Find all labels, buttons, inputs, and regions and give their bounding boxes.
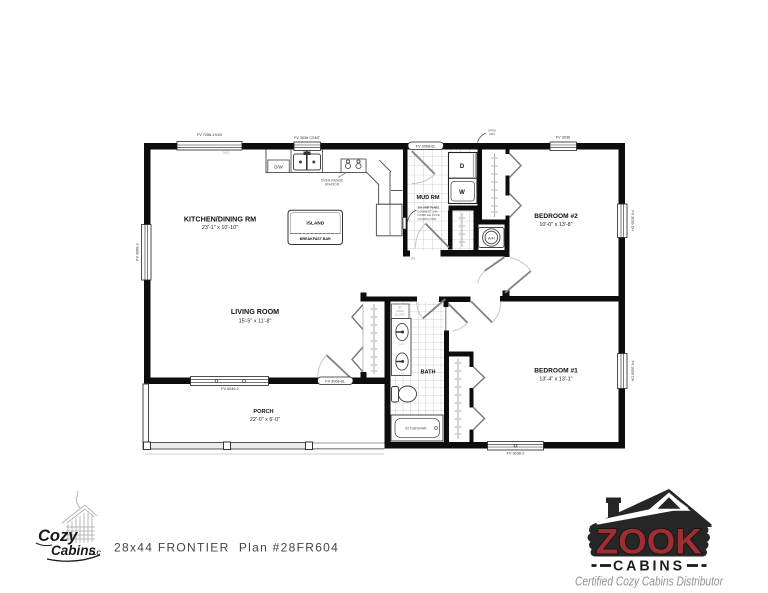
svg-text:FV 3036-2: FV 3036-2 — [507, 452, 525, 456]
svg-text:D: D — [460, 164, 465, 170]
svg-text:36x22: 36x22 — [222, 151, 230, 155]
svg-text:LAV: LAV — [399, 343, 404, 346]
svg-text:ABV: ABV — [489, 132, 495, 136]
svg-text:22'-0" x 6'-0": 22'-0" x 6'-0" — [250, 417, 280, 423]
svg-text:2'6: 2'6 — [411, 257, 415, 261]
svg-text:CLOSET: CLOSET — [395, 312, 406, 316]
svg-text:BATH: BATH — [420, 370, 435, 376]
svg-text:BREAKFAST BAR: BREAKFAST BAR — [300, 237, 331, 241]
svg-text:LIVING ROOM: LIVING ROOM — [231, 307, 279, 316]
svg-text:ISLAND: ISLAND — [306, 220, 324, 226]
svg-text:FV 3036: FV 3036 — [556, 136, 570, 140]
svg-text:15'-5" x 11'-8": 15'-5" x 11'-8" — [239, 319, 272, 325]
svg-text:36": 36" — [398, 306, 402, 310]
svg-text:13'-4" x 13'-1": 13'-4" x 13'-1" — [539, 377, 572, 383]
svg-text:FV 3068-2: FV 3068-2 — [135, 243, 139, 261]
svg-text:60 TUB/SHWR: 60 TUB/SHWR — [405, 427, 427, 431]
svg-text:W: W — [459, 190, 465, 196]
svg-text:D/W: D/W — [274, 165, 283, 170]
svg-text:KITCHEN/DINING RM: KITCHEN/DINING RM — [184, 214, 256, 223]
svg-text:BEDROOM #1: BEDROOM #1 — [534, 368, 578, 375]
svg-text:FV 6046-2: FV 6046-2 — [221, 387, 239, 391]
svg-text:PORCH: PORCH — [253, 409, 273, 415]
svg-text:W/HOOD: W/HOOD — [325, 183, 340, 187]
svg-text:28x44 FRONTIER Plan #28FR604: 28x44 FRONTIER Plan #28FR604 — [114, 541, 339, 555]
svg-text:A/H: A/H — [488, 235, 495, 240]
svg-text:ZOOK: ZOOK — [596, 523, 702, 562]
svg-text:FV 3068-6L: FV 3068-6L — [325, 379, 345, 383]
svg-text:23'-1" x 10'-10": 23'-1" x 10'-10" — [202, 225, 238, 231]
svg-text:CABINS: CABINS — [613, 559, 685, 575]
svg-text:FV 3036 DH: FV 3036 DH — [631, 210, 635, 231]
svg-text:LAV: LAV — [399, 373, 404, 376]
svg-text:FV 3036 DH: FV 3036 DH — [631, 361, 635, 382]
svg-text:10'-0" x 13'-8": 10'-0" x 13'-8" — [539, 222, 572, 228]
svg-text:LINEN: LINEN — [396, 309, 404, 313]
svg-text:FV 3036 CSMT: FV 3036 CSMT — [294, 136, 321, 140]
svg-text:MUD RM: MUD RM — [417, 195, 440, 201]
svg-text:CONDUCTOR: CONDUCTOR — [418, 217, 437, 221]
svg-text:Certified Cozy Cabins Distribu: Certified Cozy Cabins Distributor — [575, 575, 724, 589]
svg-text:FV 3068-6L: FV 3068-6L — [416, 144, 436, 148]
svg-text:BEDROOM #2: BEDROOM #2 — [534, 213, 578, 220]
svg-text:FV 7266-19/20: FV 7266-19/20 — [197, 133, 222, 137]
